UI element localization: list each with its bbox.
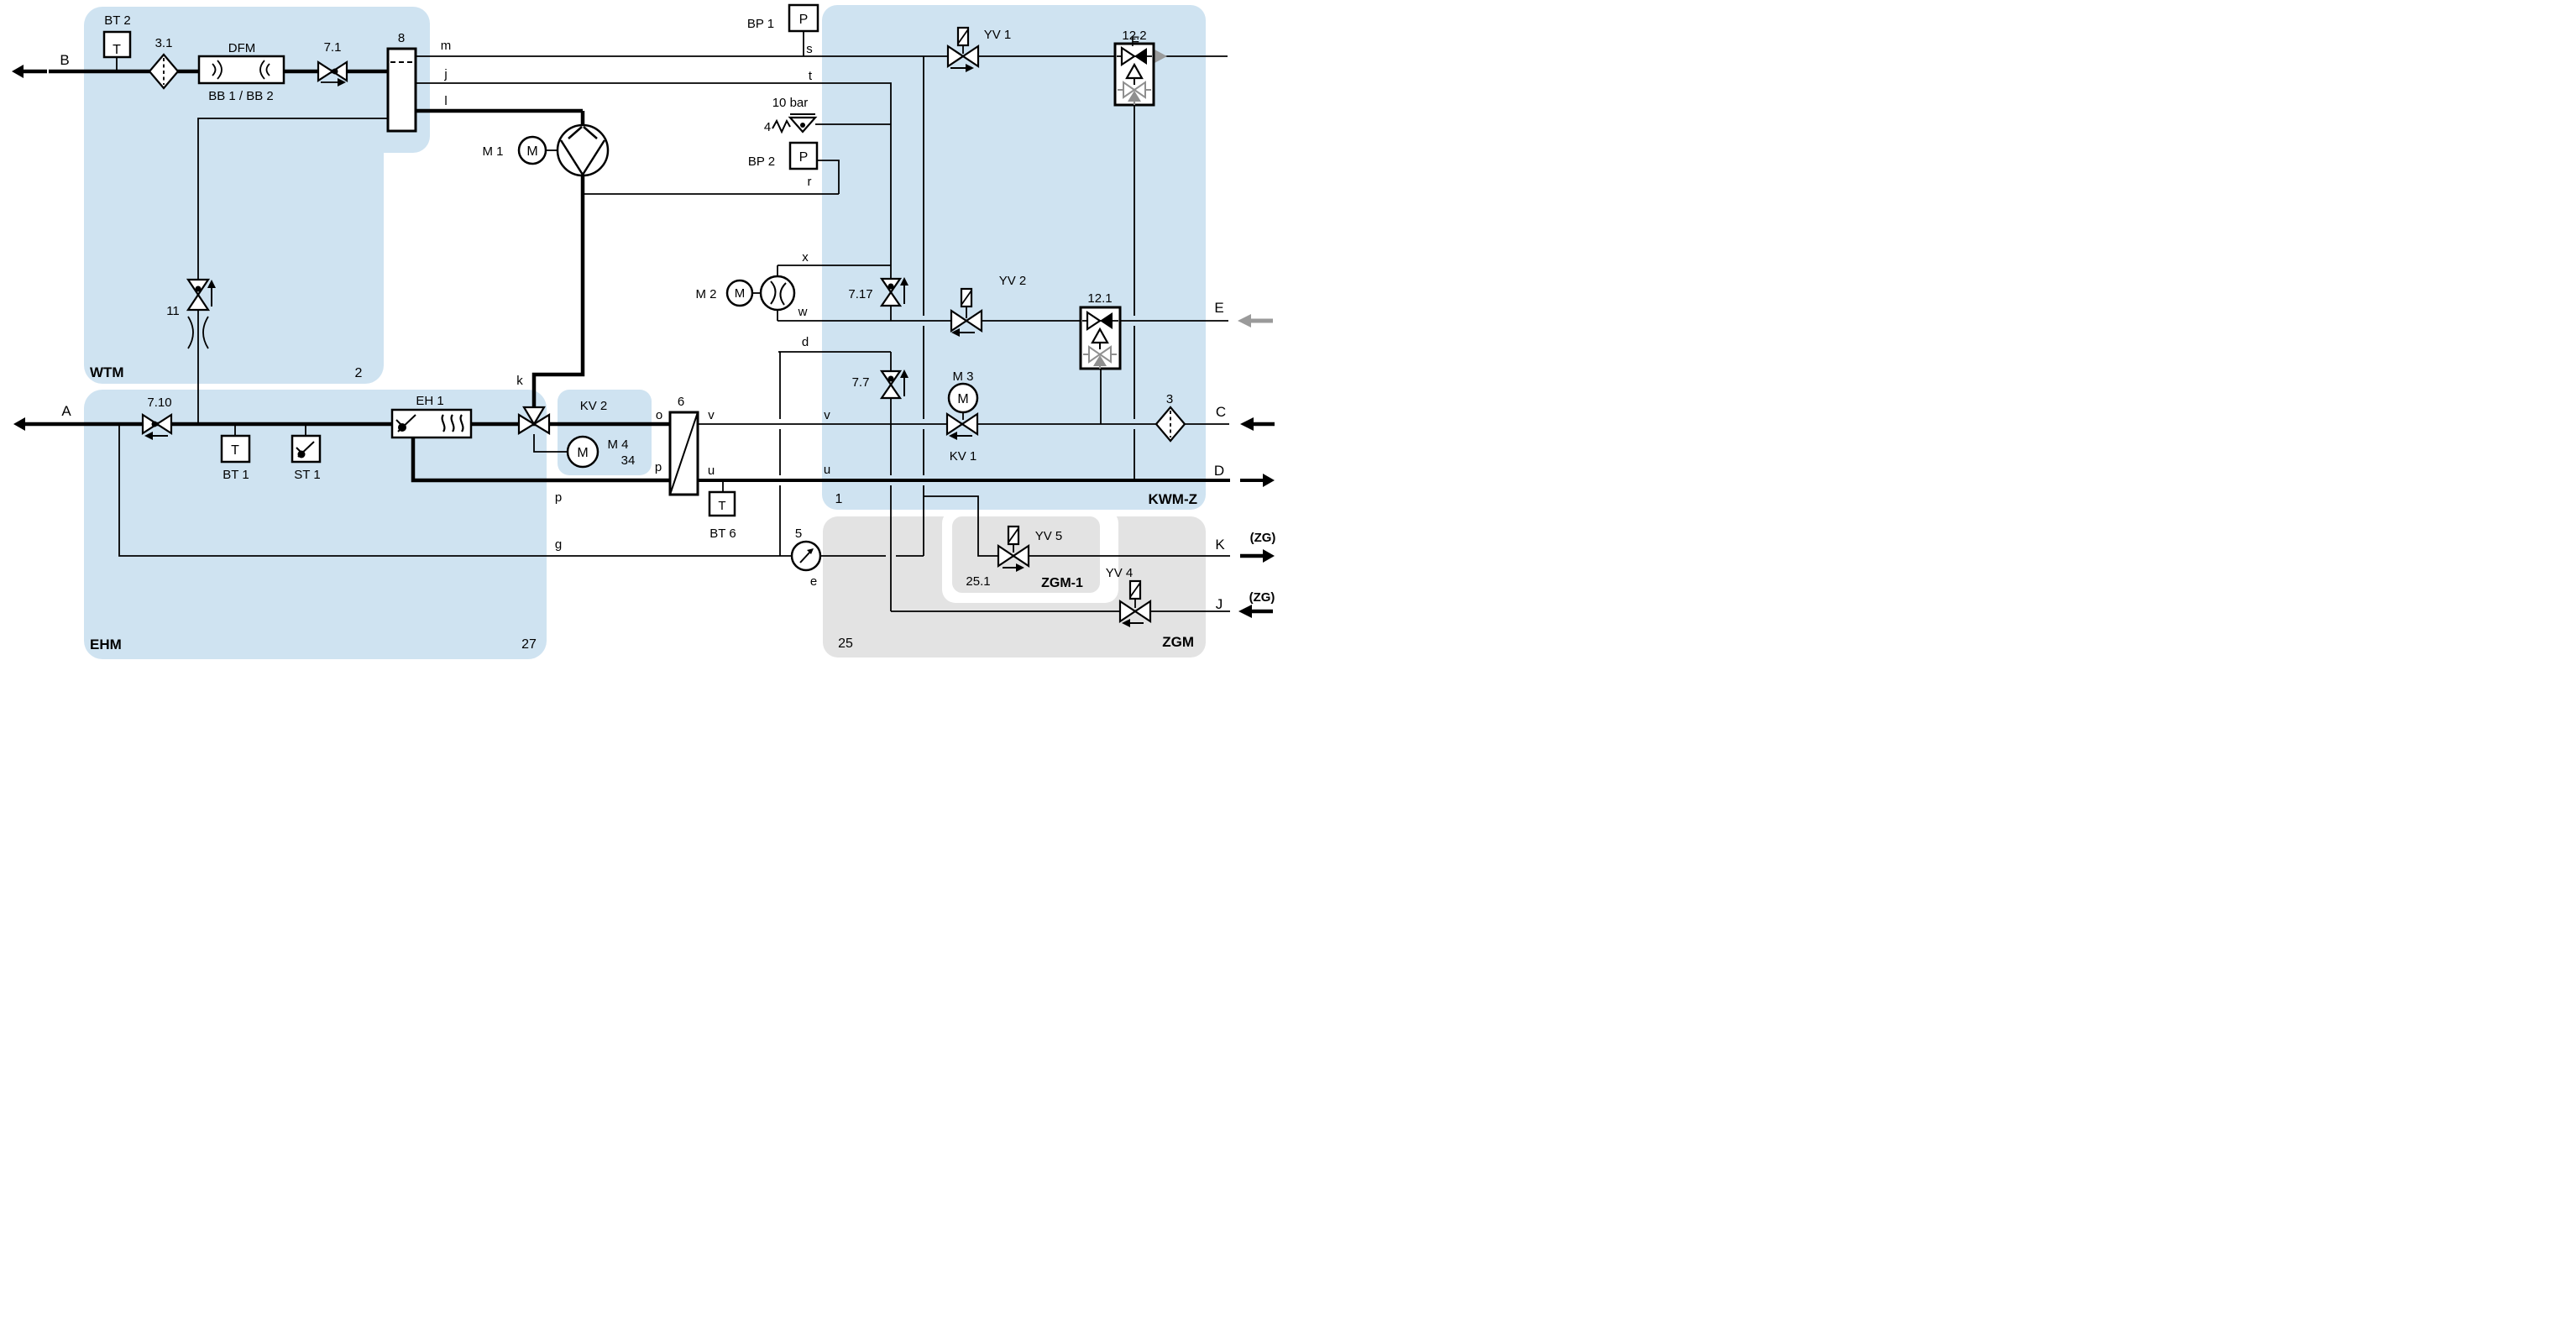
line-l-label: l [444, 94, 447, 108]
gauge-5-label: 5 [795, 527, 802, 541]
valve-yv1-label: YV 1 [984, 28, 1012, 42]
module-wtm-label: WTM [90, 364, 124, 380]
st1-sensor-icon [292, 436, 320, 462]
gauge-5-icon [792, 542, 820, 570]
dfm-label: DFM [228, 41, 256, 55]
motor-m3-label: M 3 [952, 369, 973, 384]
valve-7-7-label: 7.7 [852, 375, 870, 390]
port-k-label: K [1215, 537, 1225, 553]
tank-8-icon [388, 49, 416, 131]
valve-kv1-label: KV 1 [950, 449, 977, 464]
bt2-label: BT 2 [104, 13, 130, 28]
m1-motor-glyph: M [526, 144, 537, 159]
pump-m2-label: M 2 [695, 287, 716, 301]
module-kwmz-number: 1 [835, 492, 843, 506]
line-g-label: g [555, 537, 562, 552]
schematic-svg: WTM 2 EHM 27 KWM-Z 1 ZGM 25 ZGM-1 25.1 B… [0, 0, 1288, 668]
module-ehm-area [84, 390, 547, 659]
inlet-e-arrow-icon [1238, 314, 1251, 327]
bp2-label: BP 2 [748, 155, 775, 169]
valve-7-10-label: 7.10 [147, 396, 171, 410]
m2-motor-glyph: M [735, 286, 746, 301]
outlet-k-arrow-icon [1263, 549, 1275, 563]
bt6-t-glyph: T [718, 499, 725, 513]
port-b-label: B [60, 52, 69, 68]
line-p-label: p [655, 460, 662, 474]
tank-8-label: 8 [398, 31, 405, 45]
heater-eh1-icon [392, 410, 471, 437]
port-c-label: C [1216, 404, 1226, 420]
pipe-j-t [416, 83, 891, 321]
bt1-label: BT 1 [223, 468, 249, 482]
outlet-a-arrow-icon [13, 417, 25, 431]
port-k-zg-label: (ZG) [1250, 531, 1276, 545]
line-m-label: m [441, 39, 452, 53]
line-d-label: d [802, 335, 809, 349]
module-kwmz-label: KWM-Z [1148, 491, 1197, 507]
valve-11-label: 11 [166, 304, 180, 318]
relief-pressure-label: 10 bar [772, 96, 809, 110]
check-12-1-label: 12.1 [1087, 291, 1112, 306]
st1-label: ST 1 [294, 468, 320, 482]
module-ehm-label: EHM [90, 637, 122, 652]
module-zgm1-label: ZGM-1 [1041, 576, 1083, 590]
line-u-label: u [708, 464, 715, 478]
port-j-label: J [1216, 596, 1223, 612]
motor-m4-label: M 4 [607, 437, 628, 452]
valve-yv5-label: YV 5 [1035, 529, 1063, 543]
valve-7-1-label: 7.1 [324, 40, 342, 55]
filter-3-1-label: 3.1 [155, 36, 173, 50]
port-d-label: D [1214, 463, 1224, 479]
bt2-t-glyph: T [113, 43, 121, 57]
module-zgm1-number: 25.1 [966, 574, 990, 589]
valve-yv2-label: YV 2 [999, 274, 1027, 288]
port-e-label: E [1214, 300, 1223, 316]
kv2-drive-label: 34 [621, 453, 636, 468]
line-o-label: o [656, 408, 662, 422]
port-j-zg-label: (ZG) [1249, 590, 1275, 605]
heater-eh1-label: EH 1 [416, 394, 443, 408]
pump-m1-label: M 1 [482, 144, 503, 159]
module-zgm-number: 25 [838, 637, 853, 651]
line-j-label: j [443, 67, 447, 81]
m4-motor-glyph: M [577, 446, 588, 460]
bp1-p-glyph: P [799, 13, 809, 27]
check-unit-12-2-icon [1115, 44, 1154, 105]
dfm-flowmeter-icon [199, 56, 284, 83]
line-r-label: r [808, 175, 812, 189]
port-a-label: A [61, 403, 71, 419]
line-s-label: s [806, 42, 813, 56]
line-x-label: x [802, 250, 809, 265]
line-e-label: e [810, 574, 817, 589]
inlet-j-arrow-icon [1238, 605, 1252, 618]
relief-valve-label: 4 [764, 120, 771, 134]
bt1-t-glyph: T [231, 443, 239, 458]
line-w-label: w [798, 305, 808, 319]
check-12-2-label: 12.2 [1122, 29, 1146, 43]
module-zgm-label: ZGM [1162, 634, 1194, 650]
filter-3-label: 3 [1166, 392, 1173, 406]
line-k-label: k [516, 374, 523, 388]
inlet-c-arrow-icon [1240, 417, 1254, 431]
module-ehm-number: 27 [521, 637, 537, 652]
module-wtm-number: 2 [355, 366, 363, 380]
m3-motor-glyph: M [957, 392, 968, 406]
valve-7-17-label: 7.17 [848, 287, 872, 301]
bp2-p-glyph: P [799, 150, 809, 165]
bt6-label: BT 6 [709, 527, 736, 541]
line-v2-label: v [824, 408, 830, 422]
valve-yv4-label: YV 4 [1106, 566, 1134, 580]
line-p2-label: p [555, 490, 562, 505]
line-v-label: v [708, 408, 715, 422]
check-unit-12-1-icon [1081, 307, 1120, 369]
line-t-label: t [809, 69, 813, 83]
line-u2-label: u [824, 463, 830, 477]
bp1-label: BP 1 [747, 17, 774, 31]
heat-exchanger-6-label: 6 [678, 395, 684, 409]
dfm-sensors-label: BB 1 / BB 2 [208, 89, 274, 103]
pid-schematic: WTM 2 EHM 27 KWM-Z 1 ZGM 25 ZGM-1 25.1 B… [0, 0, 1288, 668]
valve-kv2-label: KV 2 [580, 399, 608, 413]
relief-valve-4-icon [772, 114, 815, 132]
heat-exchanger-6-icon [670, 412, 698, 495]
outlet-d-arrow-icon [1263, 474, 1275, 487]
